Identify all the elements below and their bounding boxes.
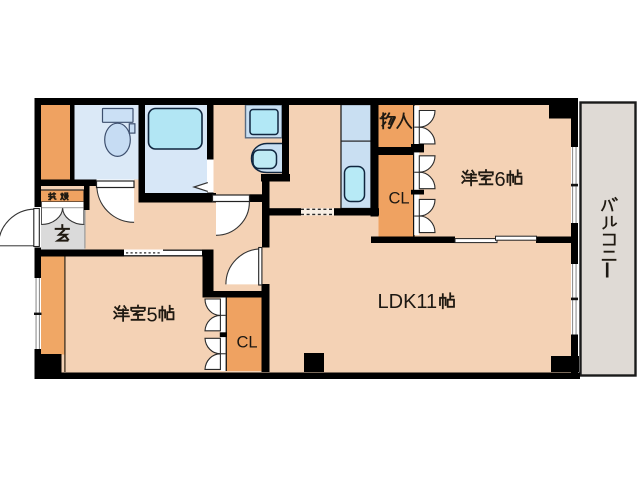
svg-text:6: 6 bbox=[495, 169, 506, 191]
svg-text:CL: CL bbox=[389, 190, 410, 208]
svg-text:LDK11: LDK11 bbox=[378, 291, 438, 313]
svg-text:CL: CL bbox=[237, 334, 258, 352]
svg-text:5: 5 bbox=[147, 305, 158, 327]
